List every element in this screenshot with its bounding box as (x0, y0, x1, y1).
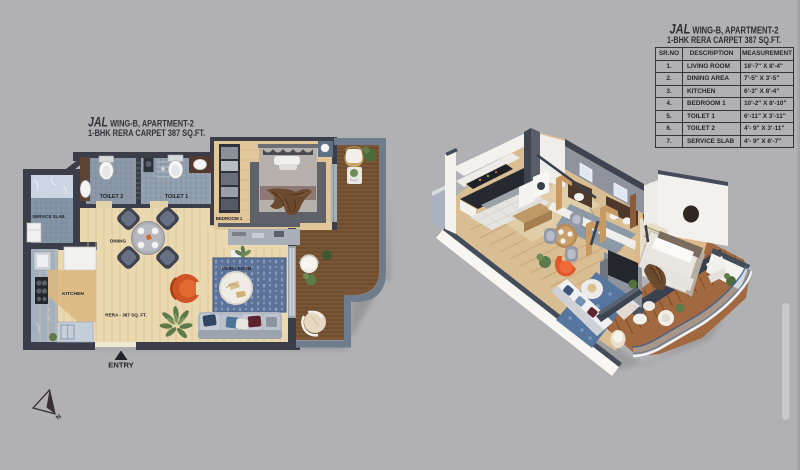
svg-text:RERA - 387 SQ. FT.: RERA - 387 SQ. FT. (105, 313, 146, 318)
svg-text:KITCHEN: KITCHEN (62, 291, 84, 297)
svg-text:TOILET 2: TOILET 2 (100, 194, 124, 200)
svg-text:TOILET 1: TOILET 1 (165, 194, 189, 200)
svg-text:DINING: DINING (110, 239, 127, 244)
svg-text:N: N (55, 413, 63, 422)
svg-text:LIVING ROOM: LIVING ROOM (222, 266, 252, 271)
svg-text:ENTRY: ENTRY (108, 361, 133, 370)
svg-text:BEDROOM 1: BEDROOM 1 (216, 216, 243, 221)
svg-text:SERVICE SLAB: SERVICE SLAB (32, 214, 64, 219)
